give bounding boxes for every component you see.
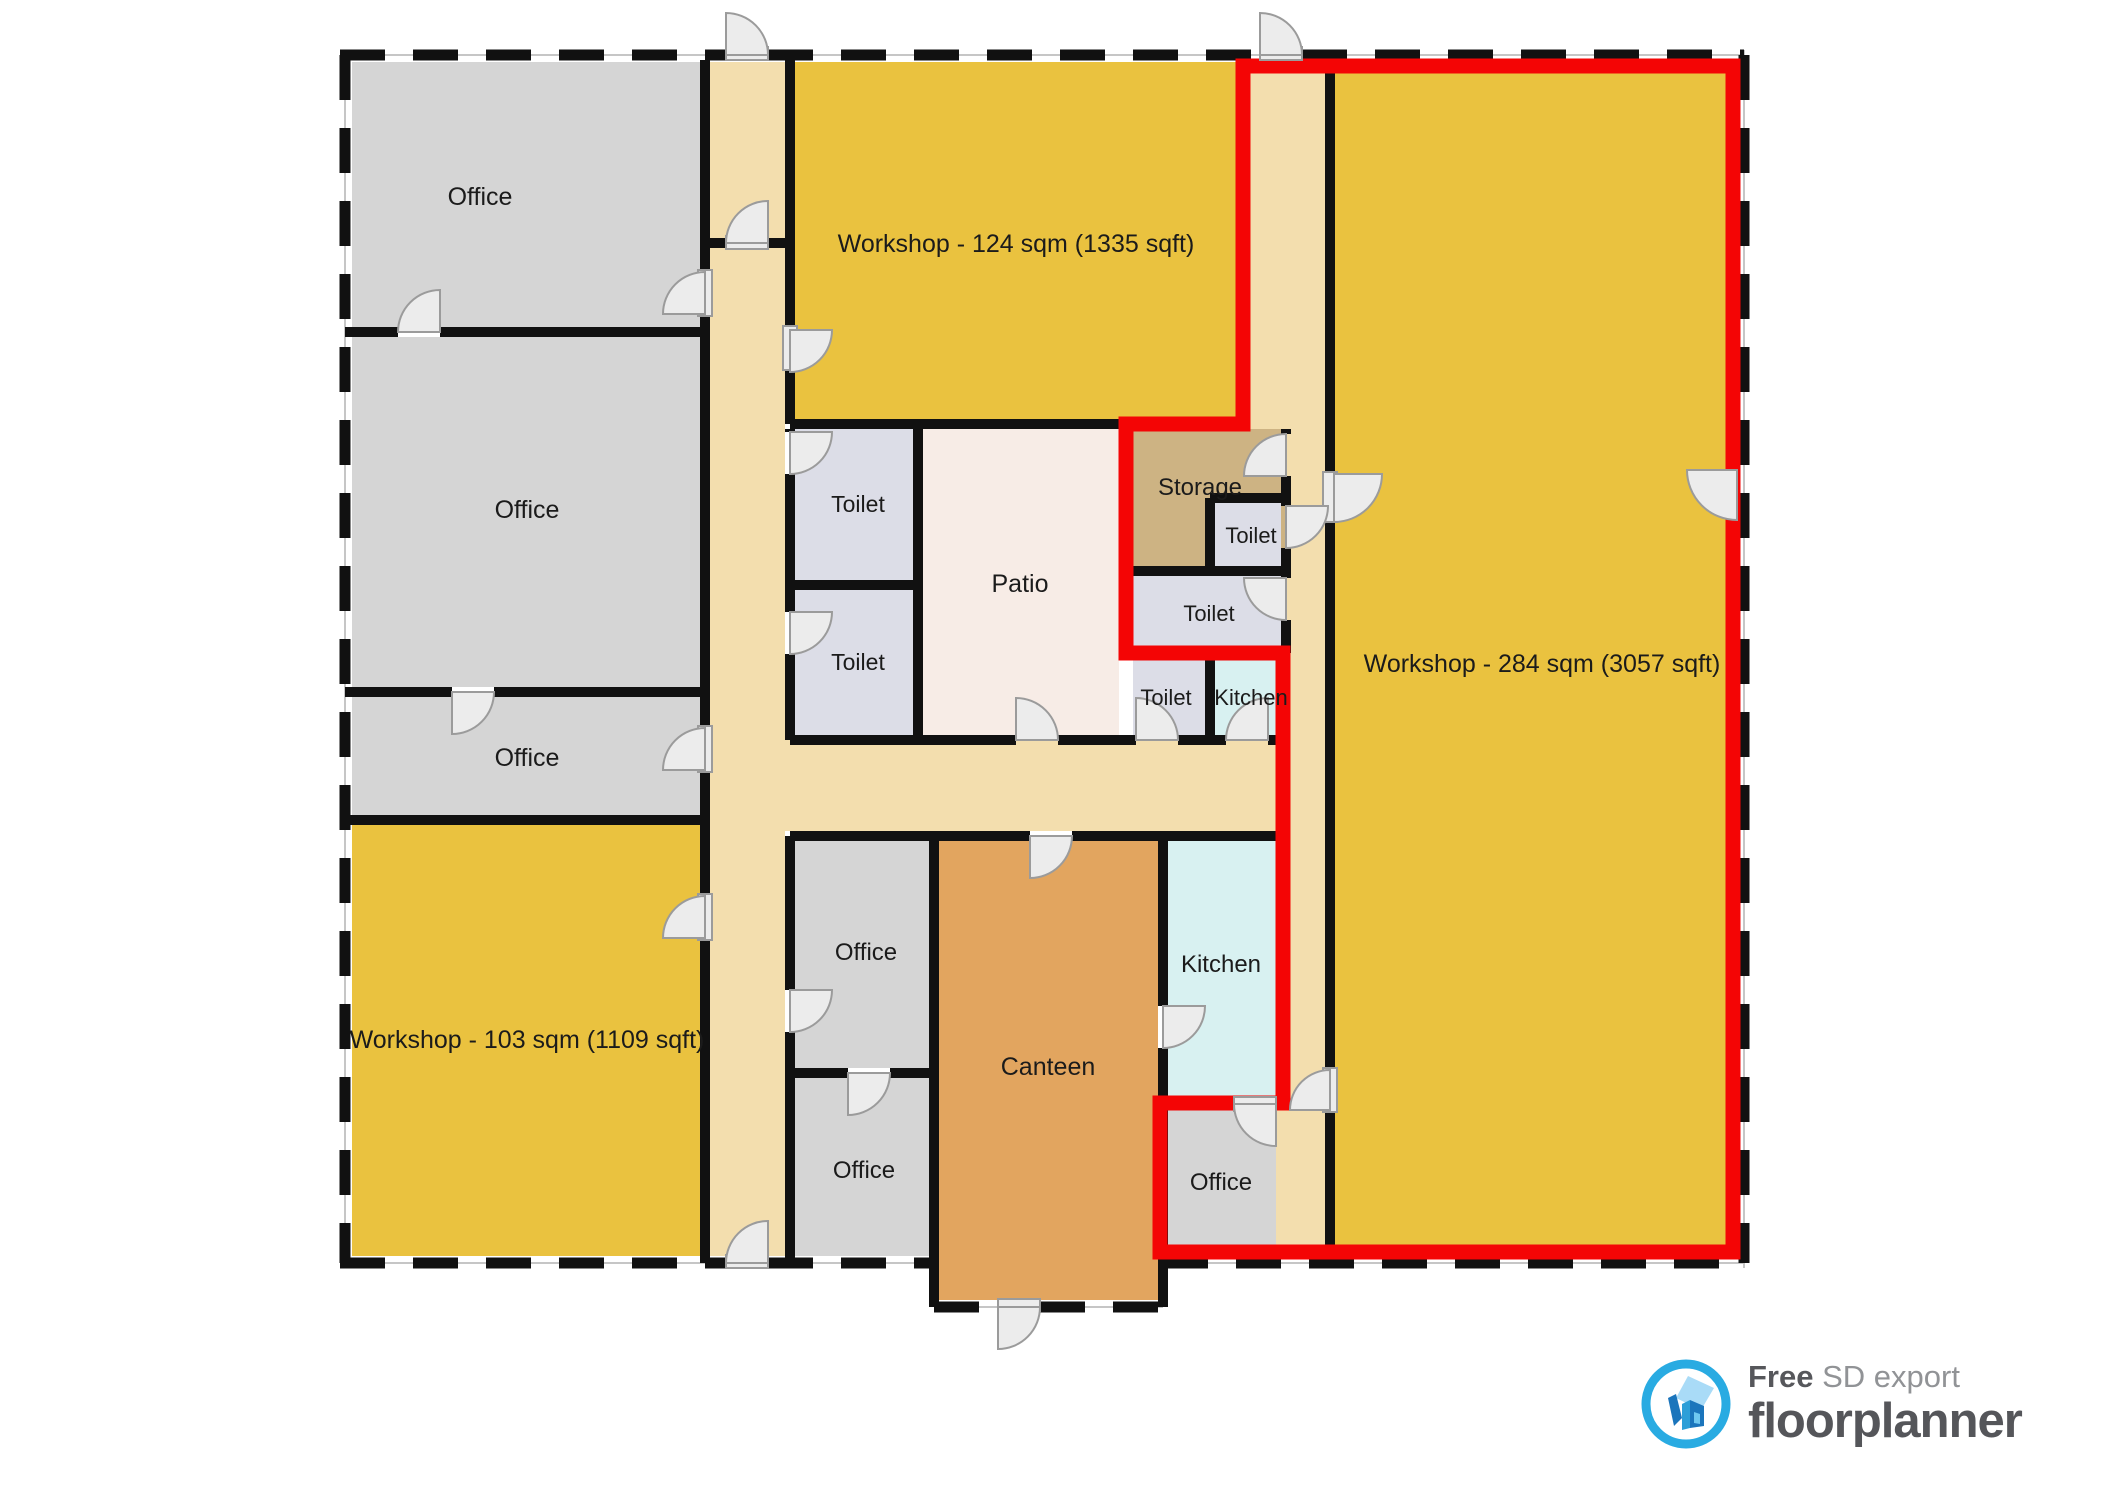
room-label-canteen: Canteen bbox=[1001, 1053, 1096, 1081]
door-arc-entrance-top-left bbox=[726, 13, 768, 55]
room-label-workshop-103: Workshop - 103 sqm (1109 sqft) bbox=[350, 1026, 705, 1054]
floorplanner-logo: Free SD export floorplanner bbox=[1638, 1356, 2022, 1452]
room-label-office-1: Office bbox=[448, 183, 513, 211]
room-office-1 bbox=[350, 60, 700, 327]
room-label-toilet-3: Toilet bbox=[1225, 523, 1276, 548]
room-label-kitchen-small: Kitchen bbox=[1214, 685, 1287, 710]
room-label-toilet-5: Toilet bbox=[1140, 685, 1191, 710]
room-label-office-bottom-right: Office bbox=[1190, 1169, 1252, 1196]
room-label-toilet-1: Toilet bbox=[831, 491, 885, 517]
logo-brand: floorplanner bbox=[1748, 1396, 2022, 1447]
room-label-toilet-2: Toilet bbox=[831, 649, 885, 675]
floorplan-canvas: OfficeOfficeOfficeWorkshop - 103 sqm (11… bbox=[0, 0, 2105, 1489]
room-corridor-middle bbox=[710, 735, 1276, 831]
door-arc-canteen-exterior bbox=[998, 1307, 1040, 1349]
door-arc-entrance-top-right bbox=[1260, 13, 1302, 55]
room-label-kitchen-big: Kitchen bbox=[1181, 951, 1261, 978]
logo-free-label: Free bbox=[1748, 1359, 1813, 1394]
floorplanner-house-icon bbox=[1638, 1356, 1734, 1452]
room-label-storage: Storage bbox=[1158, 474, 1242, 501]
room-label-office-mid-top: Office bbox=[835, 939, 897, 966]
logo-export-label: SD export bbox=[1822, 1359, 1960, 1394]
logo-text: Free SD export floorplanner bbox=[1748, 1361, 2022, 1447]
room-label-workshop-124: Workshop - 124 sqm (1335 sqft) bbox=[838, 230, 1195, 258]
room-label-patio: Patio bbox=[992, 570, 1049, 598]
room-label-workshop-284: Workshop - 284 sqm (3057 sqft) bbox=[1364, 650, 1721, 678]
room-label-office-2: Office bbox=[495, 496, 560, 524]
room-label-office-mid-bottom: Office bbox=[833, 1157, 895, 1184]
room-label-toilet-4: Toilet bbox=[1183, 601, 1234, 626]
logo-tagline: Free SD export bbox=[1748, 1361, 2022, 1394]
room-label-office-3: Office bbox=[495, 744, 560, 772]
